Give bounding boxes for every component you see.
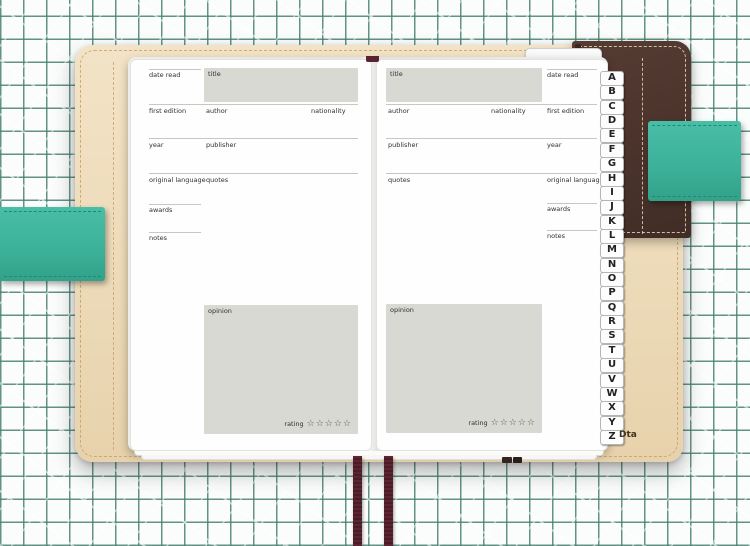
rating-row: rating ☆☆☆☆☆ (468, 419, 536, 428)
index-tab-F: F (600, 143, 624, 158)
quotes-label: quotes (388, 177, 410, 184)
nationality-label: nationality (491, 108, 526, 115)
field-rule (149, 204, 201, 205)
index-tab-N: N (600, 258, 624, 273)
year-label: year (149, 142, 164, 149)
index-tab-D: D (600, 114, 624, 129)
index-tab-Y: Y (600, 416, 624, 431)
year-label: year (547, 142, 562, 149)
index-tab-K: K (600, 215, 624, 230)
index-tab-L: L (600, 229, 624, 244)
field-rule (547, 230, 597, 231)
opinion-field-box: opinion rating ☆☆☆☆☆ (386, 304, 542, 433)
author-label: author (206, 108, 227, 115)
index-tab-I: I (600, 186, 624, 201)
teal-strap-right (648, 121, 741, 201)
field-rule (149, 69, 201, 70)
rating-row: rating ☆☆☆☆☆ (284, 420, 352, 429)
index-tab-O: O (600, 272, 624, 287)
date-read-label: date read (149, 72, 180, 79)
index-tab-J: J (600, 200, 624, 215)
field-rule (547, 203, 597, 204)
title-label: title (390, 71, 403, 78)
journal-page-right: title date read author nationality first… (376, 59, 608, 451)
reading-journal-photo: title date read first edition author nat… (0, 0, 750, 546)
index-tab-S: S (600, 329, 624, 344)
page-stack-edge (141, 455, 597, 460)
index-tab-P: P (600, 286, 624, 301)
notes-label: notes (547, 233, 565, 240)
publisher-label: publisher (206, 142, 236, 149)
index-tab-H: H (600, 172, 624, 187)
opinion-field-box: opinion rating ☆☆☆☆☆ (204, 305, 358, 434)
index-tab-B: B (600, 85, 624, 100)
ribbon-anchor (513, 457, 522, 463)
index-tab-X: X (600, 401, 624, 416)
index-tab-A: A (600, 71, 624, 86)
ribbon-anchor (502, 457, 512, 463)
index-tab-T: T (600, 344, 624, 359)
opinion-label: opinion (208, 308, 232, 315)
nationality-label: nationality (311, 108, 346, 115)
field-rule (149, 138, 358, 139)
date-read-label: date read (547, 72, 578, 79)
awards-label: awards (547, 206, 570, 213)
field-rule (149, 173, 358, 174)
opinion-label: opinion (390, 307, 414, 314)
field-rule (149, 104, 358, 105)
notes-label: notes (149, 235, 167, 242)
index-tab-W: W (600, 387, 624, 402)
title-label: title (208, 71, 221, 78)
index-tab-R: R (600, 315, 624, 330)
rating-stars-icon: ☆☆☆☆☆ (307, 420, 352, 429)
index-tab-Q: Q (600, 301, 624, 316)
original-language-label: original language (547, 177, 604, 184)
field-rule (149, 232, 201, 233)
rating-stars-icon: ☆☆☆☆☆ (491, 419, 536, 428)
index-tab-E: E (600, 128, 624, 143)
bookmark-ribbon (353, 456, 362, 546)
watermark-text: Dta (619, 430, 637, 440)
rating-label: rating (284, 421, 303, 428)
original-language-label: original language (149, 177, 206, 184)
cream-cover-stitch-seam (113, 62, 114, 450)
title-field-box: title (204, 68, 358, 102)
brown-cover-stitch-seam (642, 58, 643, 234)
journal-page-left: title date read first edition author nat… (130, 59, 372, 451)
alphabet-index-tabs: ABCDEFGHIJKLMNOPQRSTUVWXYZ (600, 71, 624, 447)
awards-label: awards (149, 207, 172, 214)
field-rule (386, 138, 597, 139)
field-rule (386, 173, 597, 174)
quotes-label: quotes (206, 177, 228, 184)
index-tab-M: M (600, 243, 624, 258)
bookmark-ribbon (384, 456, 393, 546)
spine-ribbon-end (366, 56, 379, 62)
index-tab-C: C (600, 100, 624, 115)
teal-strap-left (0, 207, 105, 281)
field-rule (386, 104, 597, 105)
field-rule (547, 69, 597, 70)
index-tab-V: V (600, 373, 624, 388)
title-field-box: title (386, 68, 542, 102)
index-tab-U: U (600, 358, 624, 373)
publisher-label: publisher (388, 142, 418, 149)
first-edition-label: first edition (547, 108, 584, 115)
rating-label: rating (468, 420, 487, 427)
author-label: author (388, 108, 409, 115)
first-edition-label: first edition (149, 108, 186, 115)
index-tab-G: G (600, 157, 624, 172)
